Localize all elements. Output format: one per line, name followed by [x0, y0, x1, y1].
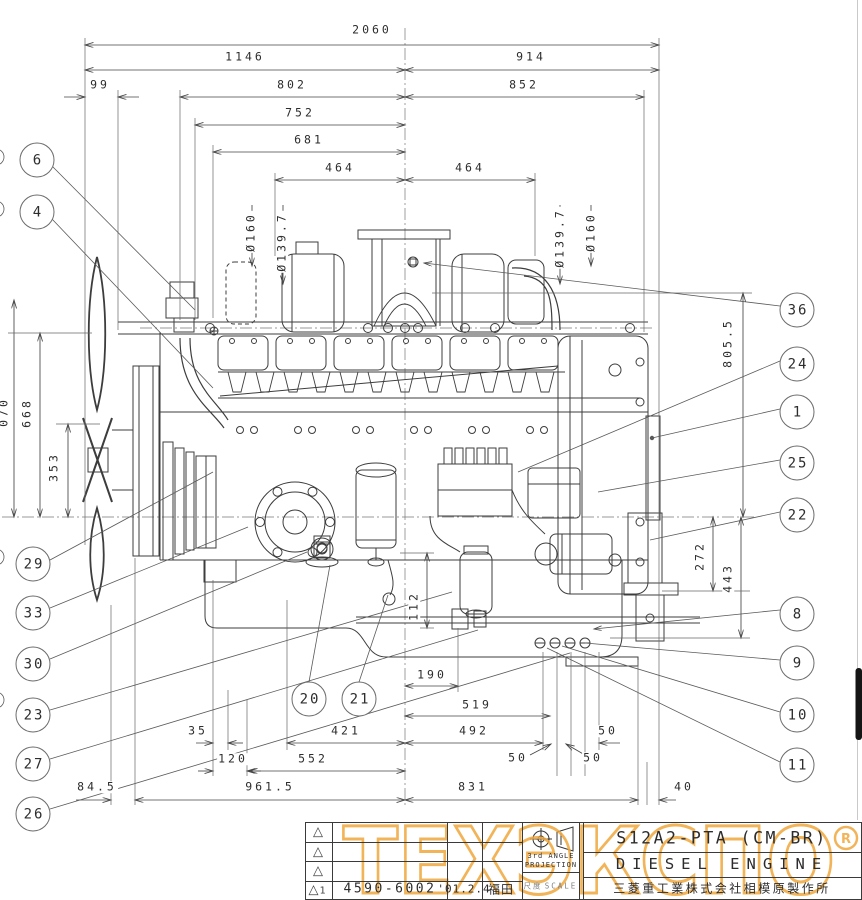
projection-label-1: 3rd ANGLE [528, 852, 575, 860]
revision-number: 1 [319, 886, 325, 897]
company-name: 三菱重工業株式会社相模原製作所 [613, 880, 831, 897]
dim-552: 552 [297, 753, 329, 765]
dim-831: 831 [457, 781, 489, 793]
engine-model: S12A2-PTA (CM-BR) [616, 829, 827, 848]
dim-353: 353 [48, 451, 60, 483]
balloon-6: 6 [20, 143, 55, 178]
revision-triangle-4: △1 [308, 884, 325, 897]
drawing-line-art: ТЕХЭКСПО R [0, 0, 862, 900]
dim-668: 668 [21, 397, 33, 429]
dim-1146: 1146 [224, 51, 266, 63]
dim-dia160-left: Ø160 [245, 211, 257, 253]
dimension-lines [14, 45, 743, 800]
engine-type: DIESEL ENGINE [616, 855, 828, 873]
dim-dia139-7-right: Ø139.7 [554, 207, 566, 269]
dim-40: 40 [673, 781, 695, 793]
balloon-leaders [0, 149, 780, 809]
dim-914: 914 [515, 51, 547, 63]
revision-triangle-1: △ [313, 826, 323, 839]
dim-99: 99 [89, 79, 111, 91]
balloon-1: 1 [780, 395, 815, 430]
balloon-25: 25 [780, 446, 815, 481]
balloon-27: 27 [16, 747, 51, 782]
dim-070: 070 [0, 396, 10, 428]
dim-190: 190 [416, 669, 448, 681]
balloon-21: 21 [342, 682, 377, 717]
dim-852: 852 [508, 79, 540, 91]
balloon-10: 10 [780, 698, 815, 733]
scale-label-kanji: 尺度 [524, 881, 543, 892]
balloon-20: 20 [292, 682, 327, 717]
dim-35: 35 [187, 725, 209, 737]
balloon-4: 4 [20, 195, 55, 230]
dim-802: 802 [276, 79, 308, 91]
dim-84-5: 84.5 [76, 781, 118, 793]
engineering-drawing: ТЕХЭКСПО R 2060 1146 914 99 802 852 752 … [0, 0, 862, 900]
scale-label-en: SCALE [545, 882, 578, 891]
scan-artifact [856, 668, 862, 740]
approver-stamp: 福田 [488, 881, 514, 898]
dim-120: 120 [217, 753, 249, 765]
dim-681: 681 [293, 134, 325, 146]
balloon-36: 36 [780, 293, 815, 328]
watermark-registered: R [841, 832, 851, 847]
dim-519: 519 [461, 699, 493, 711]
balloon-23: 23 [16, 698, 51, 733]
projection-label-2: PROJECTION [525, 861, 577, 869]
balloon-8: 8 [780, 597, 815, 632]
dim-272: 272 [694, 540, 706, 572]
dim-dia139-7-left: Ø139.7 [276, 211, 288, 273]
dim-50-a: 50 [597, 725, 619, 737]
dim-50-b: 50 [507, 752, 529, 764]
balloon-26: 26 [16, 797, 51, 832]
balloon-9: 9 [780, 646, 815, 681]
dim-112: 112 [408, 590, 420, 622]
balloon-11: 11 [780, 748, 815, 783]
revision-triangle-3: △ [313, 865, 323, 878]
dim-dia160-right: Ø160 [585, 211, 597, 253]
balloon-29: 29 [16, 547, 51, 582]
dim-2060: 2060 [351, 24, 393, 36]
drawing-date: '01.2.4 [437, 883, 490, 896]
balloon-24: 24 [780, 347, 815, 382]
dim-805-5: 805.5 [722, 317, 734, 369]
dim-421: 421 [330, 725, 362, 737]
balloon-22: 22 [780, 498, 815, 533]
drawing-number: 4590-6002 [344, 882, 437, 897]
dim-443: 443 [722, 562, 734, 594]
dim-752: 752 [284, 107, 316, 119]
dim-464-left: 464 [324, 162, 356, 174]
balloon-33: 33 [16, 596, 51, 631]
dim-961-5: 961.5 [244, 781, 296, 793]
dim-492: 492 [458, 725, 490, 737]
balloon-30: 30 [16, 647, 51, 682]
dim-464-right: 464 [454, 162, 486, 174]
dim-50-c: 50 [582, 752, 604, 764]
revision-triangle-2: △ [313, 845, 323, 858]
